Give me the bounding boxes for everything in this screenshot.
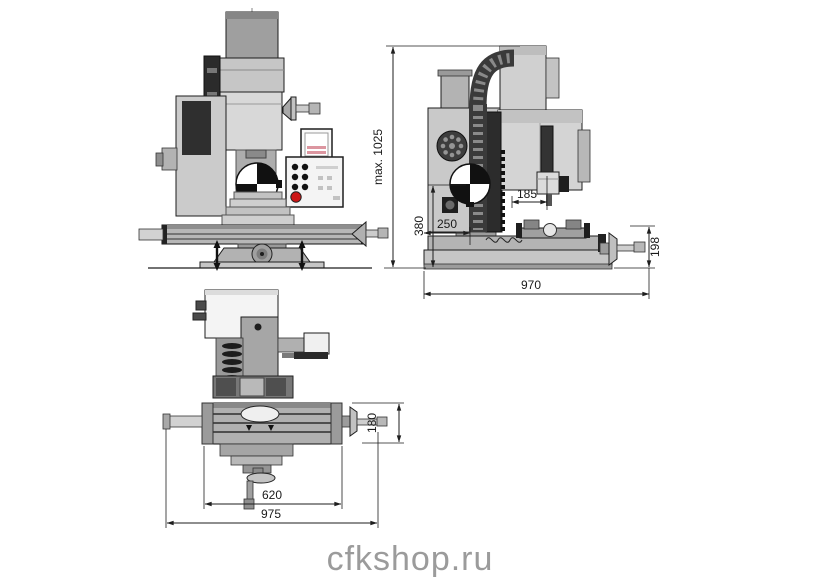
dim-cog-height: 380 — [412, 216, 426, 236]
front-view — [139, 8, 388, 271]
panel-button — [292, 174, 298, 180]
z-slide-steps — [222, 192, 294, 225]
dim-table-height: 198 — [648, 237, 662, 257]
saddle-top — [213, 376, 293, 398]
belt-cover — [218, 58, 284, 92]
head-knob — [196, 301, 206, 310]
y-axis-boss — [252, 244, 272, 264]
machine-dimensional-drawing: max. 1025 380 185 250 970 198 — [0, 0, 820, 580]
machine-vise — [516, 220, 590, 238]
leadscrew-cap — [163, 414, 170, 429]
junction-box — [438, 70, 472, 108]
spindle-screw — [255, 324, 262, 331]
dim-total-width: 975 — [261, 507, 281, 521]
cross-table — [162, 225, 366, 244]
panel-button — [302, 174, 308, 180]
dim-table-width: 180 — [365, 413, 379, 433]
side-knob-cap — [156, 153, 163, 166]
head-top-edge — [205, 290, 278, 295]
motor-cap — [226, 12, 278, 19]
dim-spindle-offset: 185 — [517, 187, 537, 201]
dim-total-depth: 970 — [521, 278, 541, 292]
leadscrew-end — [139, 229, 163, 240]
top-view — [163, 290, 387, 509]
base-side — [424, 250, 612, 269]
power-socket — [442, 197, 458, 213]
arm-box — [304, 333, 329, 354]
side-arm — [278, 338, 305, 352]
z-rack — [486, 112, 503, 232]
side-view — [424, 46, 645, 269]
dim-max-height: max. 1025 — [371, 129, 385, 185]
arm-bar — [294, 352, 328, 359]
watermark: cfkshop.ru — [327, 540, 494, 578]
panel-button — [292, 164, 298, 170]
panel-button — [292, 184, 298, 190]
head-knob — [193, 313, 206, 320]
panel-button — [302, 164, 308, 170]
side-knob — [162, 148, 177, 170]
dro-display — [301, 129, 332, 161]
arm-joint — [282, 353, 294, 358]
panel-button — [302, 184, 308, 190]
dim-table-length: 620 — [262, 488, 282, 502]
spindle-head — [220, 92, 282, 150]
quill-nose — [246, 150, 266, 158]
leadscrew-end-top — [166, 416, 202, 427]
technical-drawing-page: max. 1025 380 185 250 970 198 — [0, 0, 820, 580]
emergency-stop-button — [291, 192, 301, 202]
head-handwheel — [283, 97, 320, 120]
column-window — [182, 101, 211, 155]
control-panel — [286, 157, 343, 207]
dim-base-front: 250 — [437, 217, 457, 231]
fan-grille — [437, 131, 467, 161]
